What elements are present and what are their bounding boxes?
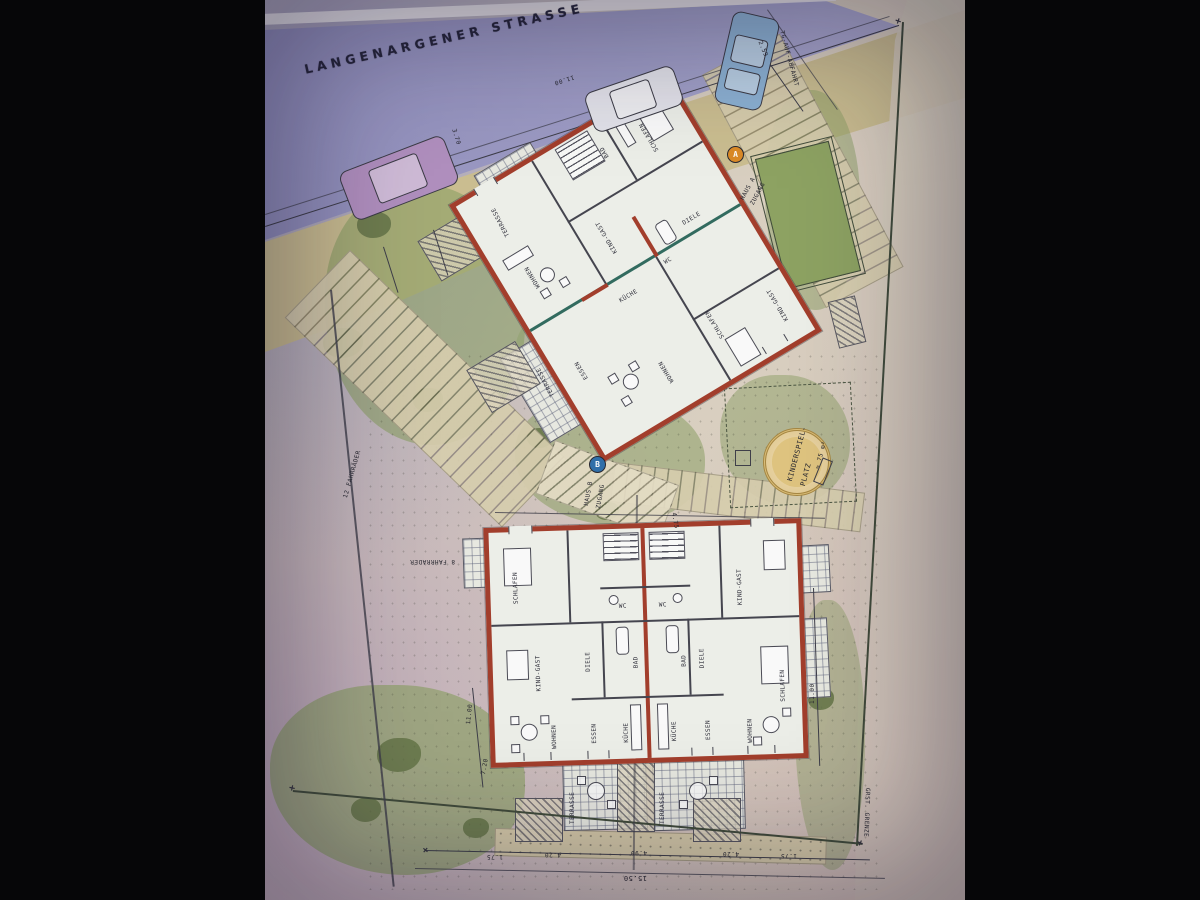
room-label: BAD	[632, 656, 639, 668]
wall-red	[632, 216, 659, 257]
terrace-chair	[679, 800, 688, 809]
chair	[511, 744, 520, 753]
dim-seg: 1.75	[487, 853, 503, 860]
room-label: WOHNEN	[746, 719, 754, 743]
photo-area: + + + +	[265, 0, 965, 900]
chair	[510, 716, 519, 725]
chair	[628, 360, 640, 372]
room-label: DIELE	[584, 652, 592, 672]
stairs	[649, 531, 686, 560]
marker-haus-b: B	[589, 456, 606, 473]
bathtub	[665, 625, 679, 653]
room-label: KÜCHE	[618, 288, 639, 304]
chair	[540, 287, 552, 299]
hatched-square	[515, 798, 563, 842]
chair	[753, 736, 762, 745]
room-label: KIND-GAST	[534, 655, 542, 691]
terrace-chair	[577, 776, 586, 785]
hatched-square	[693, 798, 741, 842]
room-label: KIND-GAST	[766, 288, 791, 323]
dim-total: 15.50	[623, 874, 647, 882]
kitchen-counter	[657, 703, 669, 749]
site-plan-photo: + + + +	[0, 0, 1200, 900]
window	[587, 750, 609, 759]
bed	[506, 650, 529, 681]
terrace-table	[587, 782, 605, 800]
table	[762, 716, 780, 734]
terrace-chair	[607, 800, 616, 809]
room-label: DIELE	[698, 648, 706, 668]
chair	[558, 276, 570, 288]
room-label: WC	[659, 601, 667, 608]
terrace-label: TERRASSE	[659, 792, 666, 824]
room-label: WC	[663, 256, 673, 266]
room-label: ESSEN	[591, 724, 599, 744]
table	[520, 723, 538, 741]
marker-haus-a: A	[727, 146, 744, 163]
bathtub	[615, 627, 629, 655]
window	[762, 334, 788, 354]
chair	[782, 707, 791, 716]
room-label: WOHNEN	[523, 265, 541, 289]
room-label: WC	[619, 603, 627, 610]
chair	[621, 395, 633, 407]
wall	[687, 619, 691, 695]
room-label: KIND-GAST	[594, 220, 619, 255]
car-window	[723, 67, 761, 96]
stairs	[555, 130, 606, 180]
window	[508, 526, 532, 535]
dim-seg: 4.20	[723, 850, 739, 857]
wall-red	[581, 283, 609, 302]
car-window	[608, 78, 657, 120]
room-label: WOHNEN	[551, 725, 559, 749]
plan-drawing: + + + +	[265, 0, 965, 900]
room-label: KÜCHE	[622, 722, 630, 742]
dim-right: 11.00	[809, 683, 816, 704]
dim-seg: 4.20	[545, 851, 561, 858]
room-label: WOHNEN	[657, 360, 675, 384]
label-bikes-8: 8 FAHRRÄDER	[410, 558, 455, 565]
car-window	[367, 152, 428, 204]
wall	[566, 530, 570, 622]
wall	[601, 621, 605, 697]
room-label: KÜCHE	[670, 721, 678, 741]
window	[691, 747, 713, 756]
room-label: KIND-GAST	[736, 569, 744, 605]
terrace-chair	[709, 776, 718, 785]
bed	[724, 327, 761, 367]
kitchen-counter	[630, 704, 642, 750]
terrace-label: TERRASSE	[569, 792, 576, 824]
chair	[540, 715, 549, 724]
party-wall	[640, 528, 651, 758]
window	[523, 752, 551, 761]
room-label: DIELE	[681, 210, 702, 226]
bed	[763, 540, 786, 571]
sink	[672, 593, 682, 603]
room-label: ESSEN	[704, 720, 712, 740]
terrace-table	[689, 782, 707, 800]
stairs	[603, 532, 640, 561]
wall	[718, 526, 722, 618]
play-equipment	[735, 450, 751, 466]
dim-seg: 4.90	[631, 849, 647, 856]
room-label: SCHLAFEN	[703, 309, 726, 340]
window	[750, 518, 774, 527]
small-structure	[828, 295, 867, 348]
chair	[607, 373, 619, 385]
window	[747, 745, 775, 754]
table	[537, 265, 558, 286]
room-label: SCHLAFEN	[779, 670, 787, 702]
room-label: SCHLAFEN	[512, 572, 520, 604]
table	[620, 371, 642, 393]
room-label: BAD	[680, 655, 687, 667]
sink	[608, 595, 618, 605]
room-label: ESSEN	[573, 360, 589, 381]
haus-b-building: SCHLAFEN DIELE KIND-GAST WC BAD KÜCHE ES…	[483, 518, 808, 768]
dim-seg: 1.75	[781, 852, 797, 859]
